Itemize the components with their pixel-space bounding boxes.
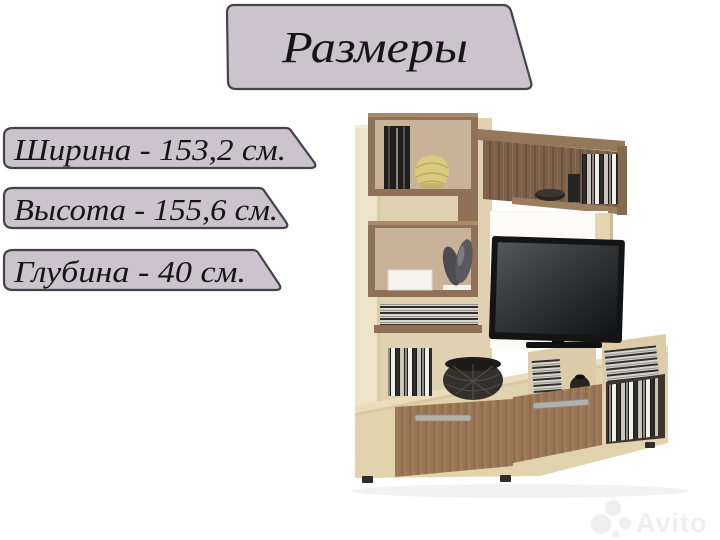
avito-watermark: Avito	[588, 496, 718, 538]
depth-label: Глубина - 40 см.	[13, 254, 246, 289]
tv-screen	[495, 242, 619, 336]
height-label: Высота - 155,6 см.	[14, 192, 278, 227]
white-storage-box	[388, 270, 432, 290]
dimension-banner-height: Высота - 155,6 см.	[0, 182, 340, 234]
walnut-connector	[458, 196, 478, 221]
compartment-books	[608, 378, 658, 442]
dimension-banner-depth: Глубина - 40 см.	[0, 244, 340, 296]
lower-cabinet	[355, 334, 668, 483]
cabinet-door-left	[395, 399, 513, 477]
upper-left-shelf-box	[368, 113, 478, 196]
standing-books	[388, 348, 432, 396]
product-photo-tv-wall-unit	[340, 98, 720, 500]
listing-image: Размеры Ширина - 153,2 см. Высота - 155,…	[0, 0, 720, 540]
title-text: Размеры	[281, 23, 468, 72]
tv	[489, 236, 625, 348]
avito-watermark-text: Avito	[636, 508, 708, 538]
decorative-sphere	[415, 155, 449, 189]
woven-basket	[443, 357, 503, 400]
title-banner: Размеры	[220, 0, 540, 96]
media-device	[568, 174, 580, 202]
avito-logo-icon	[591, 500, 631, 538]
cabinet-foot	[645, 442, 655, 448]
tv-stand-base	[526, 342, 602, 348]
wall-shelf-books	[374, 304, 482, 333]
dimension-banner-width: Ширина - 153,2 см.	[0, 122, 340, 174]
cabinet-foot	[362, 476, 373, 483]
door-handle	[415, 415, 471, 421]
width-label: Ширина - 153,2 см.	[13, 132, 286, 167]
black-books	[384, 126, 410, 189]
middle-left-shelf-box	[368, 221, 478, 297]
books-row	[582, 154, 618, 204]
bridge-shelf	[478, 129, 627, 215]
cabinet-foot	[500, 475, 511, 482]
